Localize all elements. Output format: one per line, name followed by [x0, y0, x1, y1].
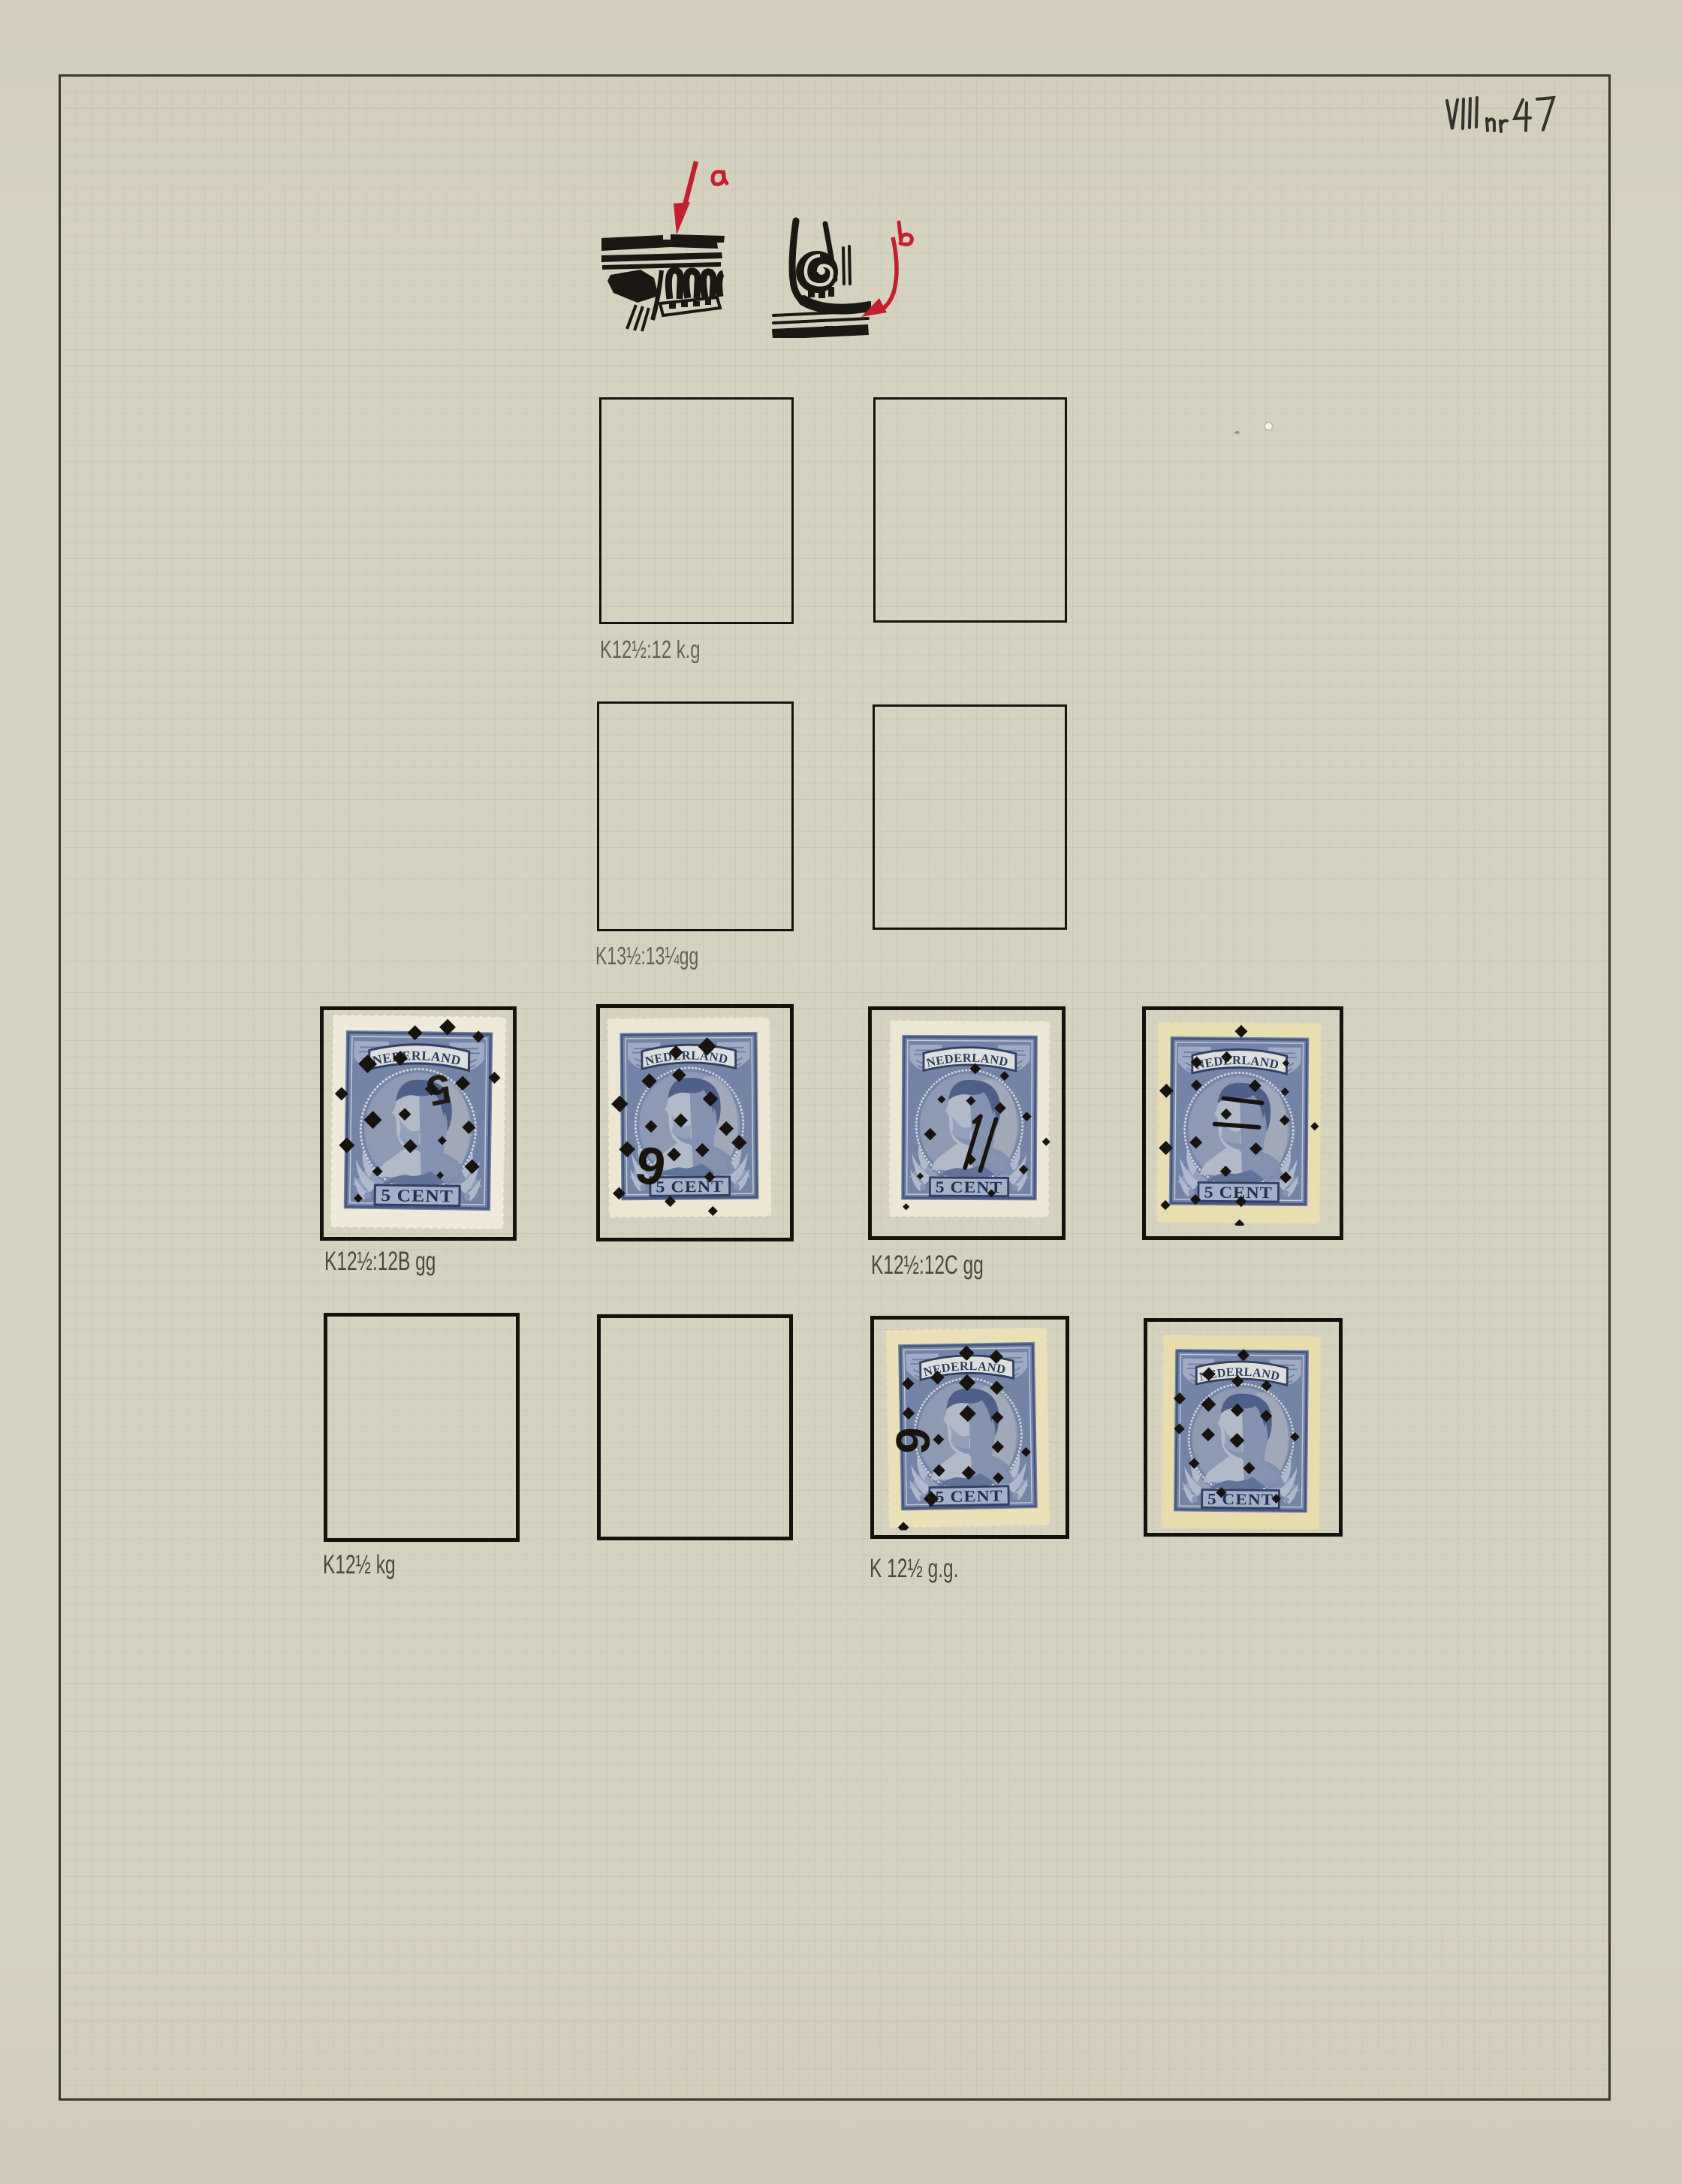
svg-text:K12½:12C gg: K12½:12C gg: [871, 1251, 984, 1280]
svg-text:K12½:12B gg: K12½:12B gg: [324, 1247, 436, 1276]
svg-text:K 12½ g.g.: K 12½ g.g.: [870, 1555, 958, 1583]
svg-text:K12½ kg: K12½ kg: [323, 1551, 396, 1579]
svg-text:9: 9: [885, 1425, 941, 1455]
svg-text:K12½:12 k.g: K12½:12 k.g: [600, 636, 700, 664]
svg-text:K13½:13¼gg: K13½:13¼gg: [595, 943, 698, 970]
